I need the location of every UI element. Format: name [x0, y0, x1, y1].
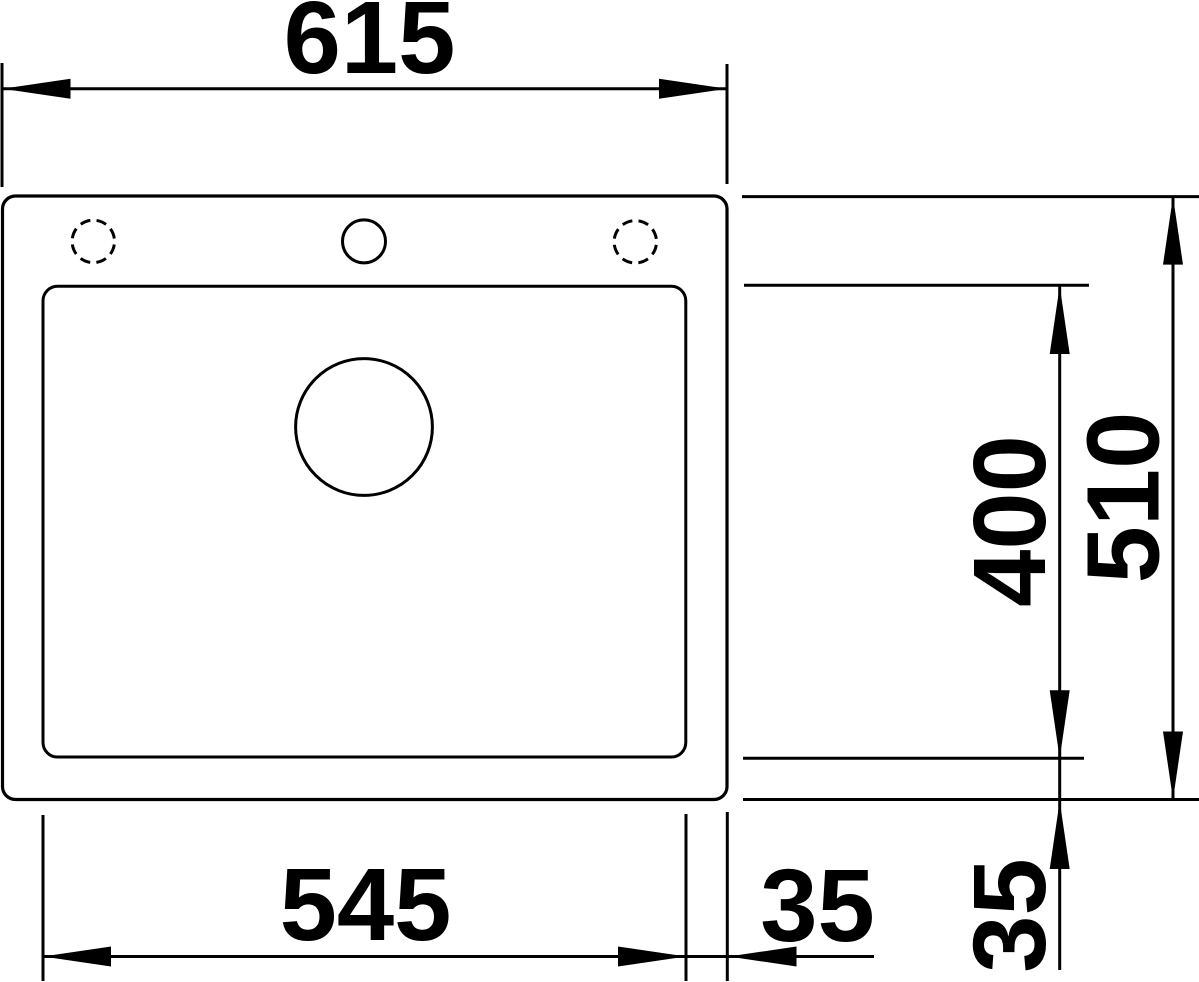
svg-text:510: 510 — [1066, 412, 1181, 584]
svg-text:35: 35 — [952, 858, 1067, 973]
svg-text:545: 545 — [280, 847, 452, 962]
svg-text:35: 35 — [760, 848, 875, 963]
svg-text:615: 615 — [284, 0, 456, 95]
svg-text:400: 400 — [952, 435, 1067, 607]
